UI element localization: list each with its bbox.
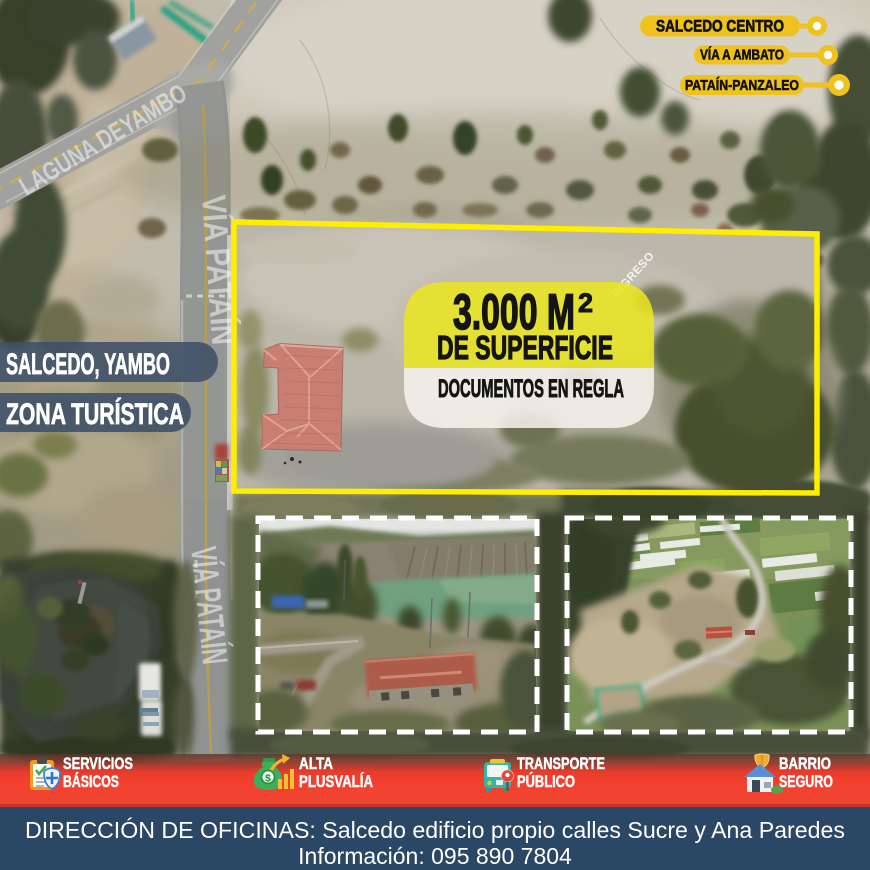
svg-text:$: $ [265, 774, 271, 785]
svg-text:SALCEDO, YAMBO: SALCEDO, YAMBO [6, 348, 170, 381]
svg-text:DOCUMENTOS EN REGLA: DOCUMENTOS EN REGLA [438, 375, 624, 403]
svg-text:SEGURO: SEGURO [779, 772, 833, 791]
svg-text:DIRECCIÓN DE OFICINAS: Salcedo: DIRECCIÓN DE OFICINAS: Salcedo edificio … [25, 817, 845, 843]
svg-text:PÚBLICO: PÚBLICO [517, 772, 575, 791]
svg-text:2: 2 [578, 288, 593, 318]
svg-text:TRANSPORTE: TRANSPORTE [517, 754, 605, 773]
svg-text:PATAÍN-PANZALEO: PATAÍN-PANZALEO [685, 77, 799, 94]
svg-text:Información: 095 890 7804: Información: 095 890 7804 [298, 843, 572, 869]
svg-text:PLUSVALÍA: PLUSVALÍA [299, 772, 373, 791]
svg-text:VÍA A AMBATO: VÍA A AMBATO [700, 47, 784, 64]
svg-text:DE SUPERFICIE: DE SUPERFICIE [437, 329, 613, 366]
svg-text:SALCEDO CENTRO: SALCEDO CENTRO [656, 17, 784, 36]
svg-text:BARRIO: BARRIO [779, 754, 831, 773]
svg-text:BÁSICOS: BÁSICOS [63, 772, 119, 791]
svg-text:SERVICIOS: SERVICIOS [63, 754, 133, 773]
svg-text:ZONA TURÍSTICA: ZONA TURÍSTICA [6, 397, 184, 431]
svg-text:ALTA: ALTA [299, 754, 333, 773]
